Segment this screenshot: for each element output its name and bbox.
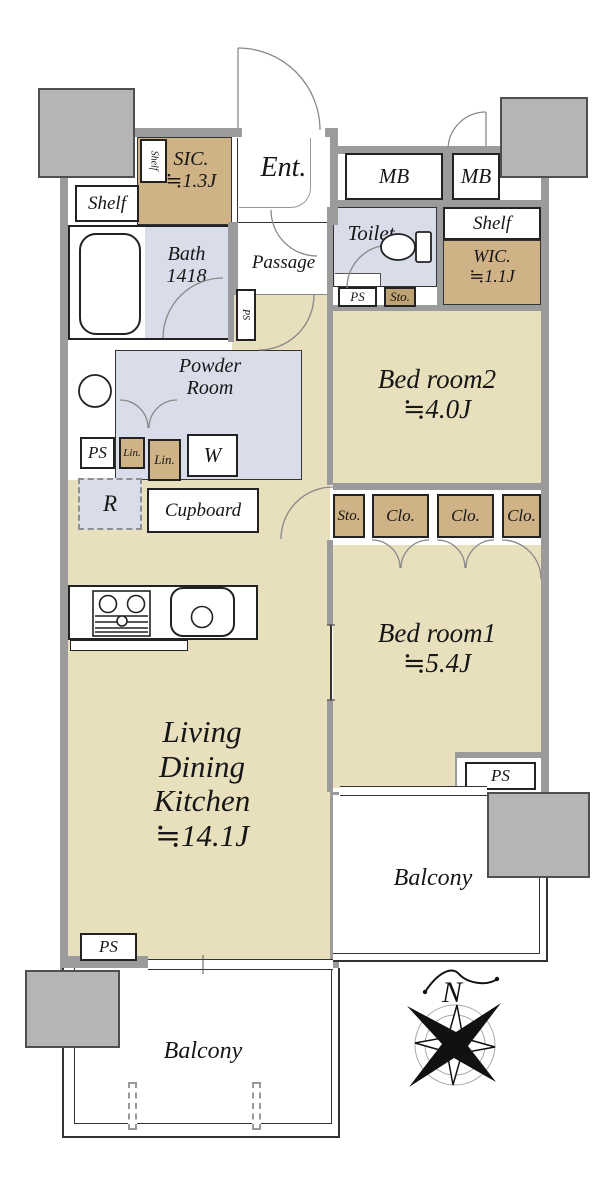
ent-label: Ent. [237,152,330,183]
kitchen-counter-lip [70,640,188,651]
compass-n-label: N [441,976,464,1009]
wic-size: ≒1.1J [443,266,541,286]
ldk-label-line1: Living [92,715,312,750]
clo2-label: Clo. [451,506,480,525]
compass-star-secondary [415,1005,495,1085]
kitchen-counter [68,585,258,640]
wic-label: WIC. ≒1.1J [443,246,541,286]
washer-box: W [187,434,238,477]
fridge-label: R [103,491,117,517]
lin-small-box: Lin. [119,437,145,469]
bath-size: 1418 [145,265,228,287]
pillar-top-left [38,88,135,178]
shelf-right-box: Shelf [443,207,541,240]
room-corridor [300,350,330,482]
washer-label: W [204,444,222,468]
sto-entry-label: Sto. [390,290,410,305]
ps-vertical-label: PS [240,309,251,320]
bedroom1-name: Bed room1 [333,618,541,648]
fridge-box: R [78,478,142,530]
clo1-box: Clo. [372,494,429,538]
mb-door-arc [448,112,486,148]
clo3-label: Clo. [507,506,536,525]
wall-divider-b [327,540,333,625]
wall-closet-top [333,483,541,490]
ldk-label-size: ≒14.1J [92,819,312,854]
ps-powder-box: PS [80,437,115,469]
powder-line2: Room [130,377,290,399]
shelf-left-label: Shelf [88,193,126,214]
toilet-floor-notch [335,273,381,286]
clo2-box: Clo. [437,494,494,538]
wall-mb-sep [443,150,452,200]
pillar-bottom-right [487,792,590,878]
ps-powder-label: PS [88,443,107,462]
bath-label: Bath 1418 [145,243,228,288]
mb-right-label: MB [461,165,491,189]
wall-divider-c [327,700,333,792]
toilet-label: Toilet [335,222,407,246]
ldk-label: Living Dining Kitchen ≒14.1J [92,715,312,854]
balcony-divider-left [128,1082,137,1130]
clo1-label: Clo. [386,506,415,525]
wall-bath-right [228,222,234,342]
clo3-box: Clo. [502,494,541,538]
compass-rose [407,971,501,1087]
ps-bottom-box: PS [80,933,137,961]
ldk-label-line3: Kitchen [92,784,312,819]
pillar-bottom-left [25,970,120,1048]
mb-left-box: MB [345,153,443,200]
bedroom2-name: Bed room2 [333,364,541,394]
bedroom2-size: ≒4.0J [333,394,541,424]
mb-left-label: MB [379,165,409,189]
shelf-right-label: Shelf [473,213,511,234]
bedroom1-label: Bed room1 ≒5.4J [333,618,541,678]
pillar-top-right [500,97,588,178]
sto-closet-label: Sto. [338,508,361,525]
lin-small-label: Lin. [123,447,140,459]
shelf-left-box: Shelf [75,185,139,222]
powder-line1: Powder [130,355,290,377]
compass-n-swash [425,971,497,992]
shelf-vertical-label: Shelf [148,151,159,171]
compass-star-primary [407,1003,501,1087]
entrance-door-arc [238,48,320,130]
powder-label: Powder Room [130,355,290,400]
sto-entry-box: Sto. [384,287,416,307]
lin-large-label: Lin. [154,453,175,468]
cupboard-label: Cupboard [165,500,241,521]
lin-large-box: Lin. [148,439,181,481]
bedroom2-label: Bed room2 ≒4.0J [333,364,541,424]
bedroom1-size: ≒5.4J [333,648,541,678]
wall-toilet-right [437,207,443,305]
wall-right [541,178,549,792]
bedroom1-window [340,786,487,796]
ldk-window [148,959,333,970]
ps-entry-box: PS [338,287,377,307]
cupboard-box: Cupboard [147,488,259,533]
wall-divider-a [327,207,333,485]
shelf-vertical-box: Shelf [140,139,167,183]
wall-left [60,178,68,970]
sto-closet-box: Sto. [333,494,365,538]
balcony-divider-right [252,1082,261,1130]
wall-row2 [333,200,541,207]
ldk-label-line2: Dining [92,750,312,785]
passage-label: Passage [237,252,330,273]
ps-bottom-label: PS [99,937,118,956]
mb-right-box: MB [452,153,500,200]
ps-entry-label: PS [350,290,364,305]
wall-top-left [132,128,242,137]
wic-name: WIC. [443,246,541,266]
ps-vertical-box: PS [236,289,256,341]
floor-plan: Living Dining Kitchen ≒14.1J Bed room2 ≒… [0,0,615,1200]
bath-name: Bath [145,243,228,265]
ps-right-label: PS [491,766,510,785]
